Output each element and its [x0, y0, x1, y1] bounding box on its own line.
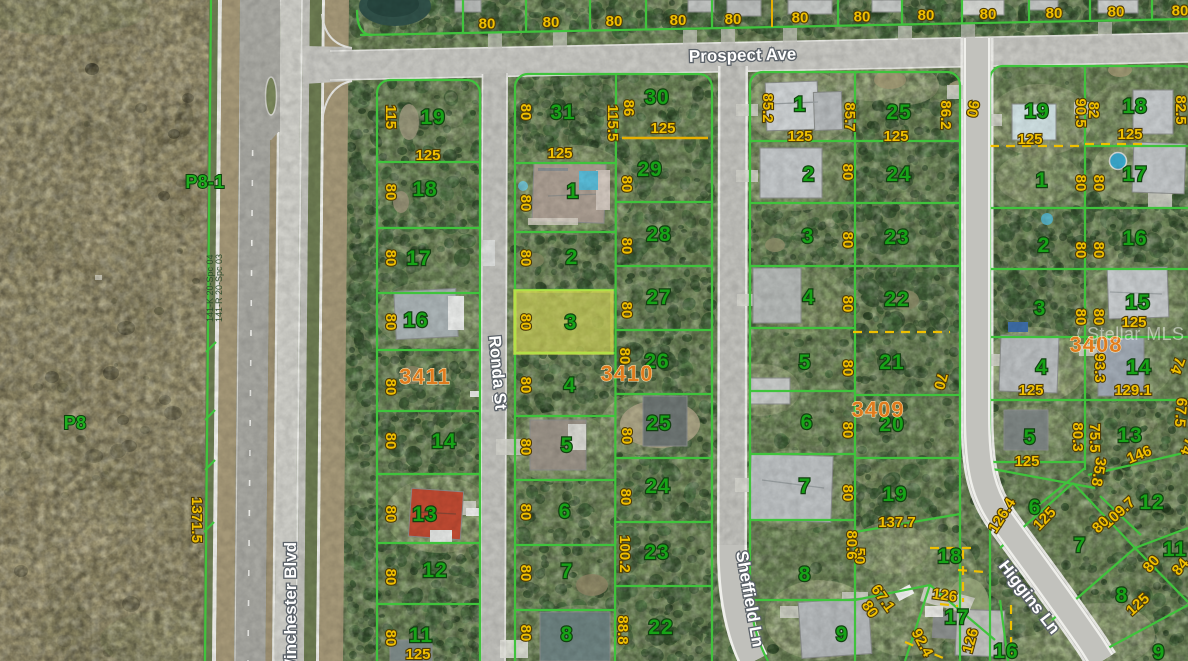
svg-text:85.2: 85.2 — [759, 93, 776, 122]
svg-text:23: 23 — [644, 541, 669, 564]
svg-text:137.7: 137.7 — [878, 514, 916, 531]
svg-text:141-R 20-Spc 03: 141-R 20-Spc 03 — [214, 254, 224, 322]
svg-text:29: 29 — [637, 158, 662, 181]
svg-text:2: 2 — [566, 246, 579, 269]
svg-text:19: 19 — [420, 106, 445, 129]
svg-text:22: 22 — [884, 288, 909, 311]
svg-text:125: 125 — [1017, 131, 1042, 148]
svg-text:85.7: 85.7 — [841, 102, 858, 131]
svg-text:75.5: 75.5 — [1086, 423, 1103, 452]
svg-text:115: 115 — [382, 105, 399, 129]
svg-text:1: 1 — [567, 180, 580, 203]
svg-text:24: 24 — [886, 163, 911, 186]
svg-text:125: 125 — [1018, 382, 1043, 399]
svg-text:12: 12 — [1139, 491, 1164, 514]
svg-text:80: 80 — [382, 314, 399, 331]
svg-text:6: 6 — [801, 411, 814, 434]
svg-text:9: 9 — [836, 623, 849, 646]
svg-text:25: 25 — [886, 101, 911, 124]
svg-text:Prospect Ave: Prospect Ave — [689, 45, 797, 66]
svg-text:80: 80 — [618, 176, 635, 193]
svg-text:3: 3 — [1034, 297, 1047, 320]
svg-text:80: 80 — [382, 569, 399, 586]
svg-text:80: 80 — [1090, 242, 1107, 259]
svg-text:5: 5 — [561, 434, 574, 457]
svg-text:12: 12 — [422, 559, 447, 582]
svg-text:80: 80 — [618, 238, 635, 255]
svg-text:90: 90 — [963, 99, 983, 118]
svg-text:80: 80 — [670, 12, 687, 29]
svg-text:3409: 3409 — [852, 397, 905, 422]
svg-text:3: 3 — [565, 311, 578, 334]
svg-text:30: 30 — [644, 86, 669, 109]
svg-text:80: 80 — [517, 504, 534, 521]
svg-text:129.1: 129.1 — [1114, 382, 1152, 399]
svg-text:80: 80 — [479, 15, 496, 32]
svg-text:80: 80 — [839, 296, 856, 313]
svg-text:80: 80 — [618, 428, 635, 445]
svg-text:80: 80 — [382, 506, 399, 523]
svg-text:5: 5 — [1024, 426, 1037, 449]
svg-text:1371.5: 1371.5 — [188, 497, 205, 543]
svg-text:80.6: 80.6 — [843, 530, 860, 559]
svg-text:7: 7 — [799, 475, 812, 498]
svg-text:1: 1 — [794, 93, 807, 116]
svg-text:80: 80 — [617, 489, 634, 506]
svg-text:9: 9 — [1153, 641, 1166, 661]
svg-text:80: 80 — [517, 250, 534, 267]
svg-text:⟨: ⟨ — [1076, 326, 1081, 341]
svg-text:80: 80 — [517, 195, 534, 212]
svg-text:18: 18 — [1122, 95, 1147, 118]
svg-text:80: 80 — [382, 379, 399, 396]
svg-text:80: 80 — [382, 184, 399, 201]
svg-text:27: 27 — [646, 286, 671, 309]
svg-text:80: 80 — [1090, 309, 1107, 326]
svg-text:125: 125 — [1117, 126, 1142, 143]
svg-text:7: 7 — [561, 560, 574, 583]
svg-text:80.3: 80.3 — [1069, 422, 1086, 451]
svg-text:22: 22 — [648, 616, 673, 639]
svg-text:Stellar MLS: Stellar MLS — [1087, 324, 1184, 344]
svg-text:82.5: 82.5 — [1172, 95, 1188, 124]
svg-text:125: 125 — [1014, 453, 1039, 470]
svg-text:125: 125 — [883, 128, 908, 145]
svg-text:4: 4 — [1036, 356, 1049, 379]
svg-text:80: 80 — [1072, 175, 1089, 192]
svg-text:125: 125 — [787, 128, 812, 145]
svg-text:80: 80 — [543, 14, 560, 31]
svg-text:100.2: 100.2 — [616, 535, 633, 573]
svg-text:80: 80 — [839, 164, 856, 181]
svg-text:25: 25 — [646, 412, 671, 435]
svg-text:8: 8 — [799, 563, 812, 586]
svg-text:80: 80 — [517, 377, 534, 394]
svg-text:13: 13 — [412, 503, 437, 526]
svg-text:7: 7 — [1074, 534, 1087, 557]
svg-text:80: 80 — [980, 6, 997, 23]
svg-text:19: 19 — [882, 483, 907, 506]
svg-text:80: 80 — [517, 104, 534, 121]
svg-text:23: 23 — [884, 226, 909, 249]
svg-text:4: 4 — [803, 286, 816, 309]
svg-text:6: 6 — [559, 500, 572, 523]
svg-text:80: 80 — [725, 11, 742, 28]
svg-text:8: 8 — [561, 623, 574, 646]
svg-text:5: 5 — [799, 351, 812, 374]
svg-text:11: 11 — [409, 624, 433, 647]
svg-text:125: 125 — [547, 145, 572, 162]
svg-text:24: 24 — [645, 475, 670, 498]
svg-text:80: 80 — [517, 625, 534, 642]
svg-text:21: 21 — [879, 351, 904, 374]
svg-text:18: 18 — [412, 178, 437, 201]
svg-text:125: 125 — [650, 120, 675, 137]
svg-text:80: 80 — [618, 302, 635, 319]
svg-text:67.5: 67.5 — [1171, 397, 1188, 428]
svg-text:4: 4 — [564, 374, 577, 397]
svg-text:80: 80 — [1108, 4, 1125, 21]
svg-text:80: 80 — [382, 433, 399, 450]
svg-text:3410: 3410 — [601, 361, 654, 386]
svg-text:16: 16 — [993, 640, 1018, 661]
svg-text:80: 80 — [1072, 242, 1089, 259]
svg-text:P8: P8 — [64, 413, 87, 433]
svg-text:80: 80 — [1090, 175, 1107, 192]
svg-text:1: 1 — [1036, 169, 1049, 192]
svg-text:17: 17 — [944, 606, 969, 629]
svg-text:16: 16 — [1122, 227, 1147, 250]
svg-text:11: 11 — [1163, 538, 1187, 561]
svg-text:86.2: 86.2 — [937, 100, 954, 129]
svg-text:80: 80 — [517, 439, 534, 456]
svg-text:80: 80 — [839, 422, 856, 439]
svg-text:14: 14 — [1126, 356, 1151, 379]
svg-text:93.3: 93.3 — [1091, 353, 1108, 382]
svg-text:18: 18 — [937, 545, 962, 568]
svg-text:125: 125 — [405, 646, 430, 661]
svg-text:126: 126 — [931, 585, 958, 605]
svg-text:2: 2 — [1038, 234, 1051, 257]
svg-text:80: 80 — [1072, 309, 1089, 326]
svg-text:125: 125 — [415, 147, 440, 164]
svg-text:80: 80 — [517, 314, 534, 331]
svg-text:P8-1: P8-1 — [185, 172, 224, 192]
svg-text:115.5: 115.5 — [604, 105, 621, 142]
svg-text:15: 15 — [1125, 291, 1150, 314]
svg-text:3411: 3411 — [399, 364, 451, 389]
svg-text:80: 80 — [792, 10, 809, 27]
svg-text:16: 16 — [403, 309, 428, 332]
svg-text:80: 80 — [1046, 5, 1063, 22]
svg-text:86: 86 — [620, 100, 637, 117]
svg-text:2: 2 — [803, 163, 816, 186]
svg-text:80: 80 — [382, 630, 399, 647]
svg-text:80: 80 — [918, 7, 935, 24]
svg-text:80: 80 — [839, 485, 856, 502]
svg-text:88.8: 88.8 — [614, 615, 631, 644]
svg-text:80: 80 — [382, 250, 399, 267]
svg-text:31: 31 — [550, 101, 575, 124]
svg-text:80: 80 — [517, 565, 534, 582]
svg-text:80: 80 — [839, 360, 856, 377]
svg-text:13: 13 — [1117, 424, 1142, 447]
svg-text:3: 3 — [802, 225, 815, 248]
svg-text:14: 14 — [431, 430, 456, 453]
svg-text:80: 80 — [1172, 2, 1188, 19]
svg-text:19: 19 — [1024, 100, 1049, 123]
svg-text:17: 17 — [1122, 163, 1147, 186]
svg-text:Winchester Blvd: Winchester Blvd — [281, 542, 300, 661]
svg-text:80: 80 — [839, 232, 856, 249]
svg-text:82: 82 — [1085, 102, 1102, 119]
svg-text:80: 80 — [854, 8, 871, 25]
svg-text:28: 28 — [646, 223, 671, 246]
svg-text:80: 80 — [606, 13, 623, 30]
svg-text:17: 17 — [406, 247, 431, 270]
